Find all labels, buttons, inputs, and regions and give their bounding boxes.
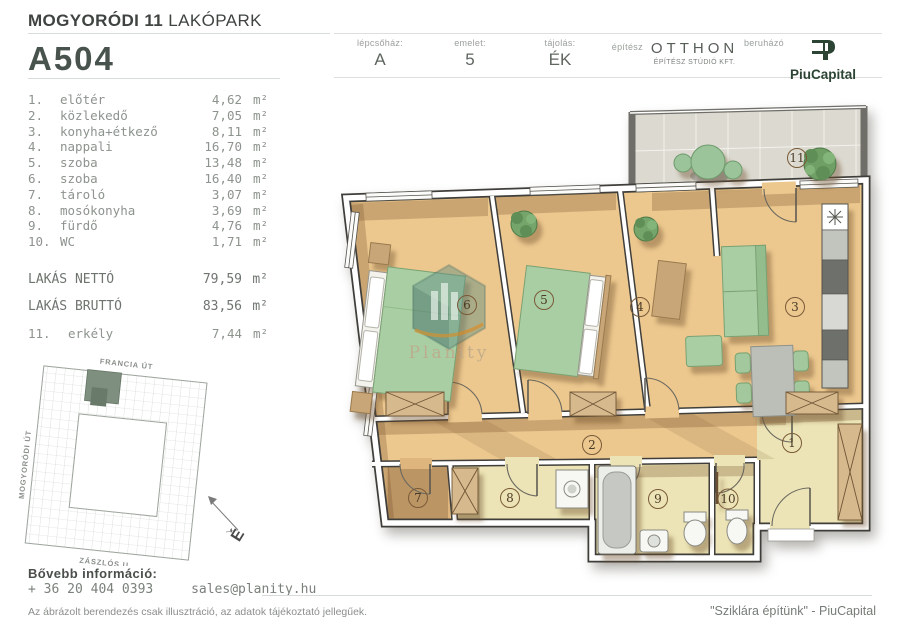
highlighted-unit-core <box>90 387 108 407</box>
washing-machine <box>556 470 588 508</box>
chair <box>736 383 752 404</box>
room-area: 4,76 <box>190 218 242 234</box>
room-name: előtér <box>60 92 190 108</box>
chair <box>793 351 809 372</box>
room-area: 4,62 <box>190 92 242 108</box>
total-net-label: LAKÁS NETTÓ <box>28 266 190 293</box>
total-gross-value: 83,56 <box>190 293 242 320</box>
svg-text:3: 3 <box>791 300 799 314</box>
plant-room4 <box>634 217 658 241</box>
balcony-table <box>691 145 725 179</box>
apartment-id: A504 <box>28 40 115 78</box>
room-name: szoba <box>60 171 190 187</box>
room-row-4: 4.nappali16,70m² <box>28 139 268 155</box>
room-name: mosókonyha <box>60 203 190 219</box>
entry-threshold <box>768 529 814 541</box>
room-num: 6. <box>28 171 60 187</box>
architect-block: építész OTTHON ÉPÍTÉSZ STÚDIÓ KFT. <box>606 34 744 77</box>
field-staircase: lépcsőház: A <box>334 34 426 77</box>
room-unit: m² <box>242 155 268 171</box>
footer-divider <box>262 595 872 596</box>
room-num: 8. <box>28 203 60 219</box>
field-orientation-value: ÉK <box>549 50 572 70</box>
room-num: 5. <box>28 155 60 171</box>
building-outline: FRANCIA ÚT MOGYORÓDI ÚT ZÁSZLÓS U. <box>11 350 209 566</box>
piucapital-building-icon <box>808 38 838 62</box>
svg-text:4: 4 <box>636 300 644 314</box>
room-area: 7,05 <box>190 108 242 124</box>
total-net-value: 79,59 <box>190 266 242 293</box>
site-plan-minimap: FRANCIA ÚT MOGYORÓDI ÚT ZÁSZLÓS U. É <box>10 346 272 566</box>
room-name: tároló <box>60 187 190 203</box>
room-area: 16,70 <box>190 139 242 155</box>
room-num: 7. <box>28 187 60 203</box>
sofa <box>721 245 768 336</box>
room-num: 2. <box>28 108 60 124</box>
architect-subtitle: ÉPÍTÉSZ STÚDIÓ KFT. <box>651 59 738 66</box>
room-row-7: 7.tároló3,07m² <box>28 187 268 203</box>
room-unit: m² <box>242 187 268 203</box>
balcony-name: erkély <box>68 326 190 341</box>
room-num: 1. <box>28 92 60 108</box>
developer-logo: PiuCapital <box>790 38 856 82</box>
room-name: WC <box>60 234 190 250</box>
total-gross-label: LAKÁS BRUTTÓ <box>28 293 190 320</box>
room-name: nappali <box>60 139 190 155</box>
room-unit: m² <box>242 92 268 108</box>
svg-text:5: 5 <box>540 293 548 307</box>
room-row-10: 10.WC1,71m² <box>28 234 268 250</box>
room-unit: m² <box>242 234 268 250</box>
room-row-6: 6.szoba16,40m² <box>28 171 268 187</box>
svg-text:8: 8 <box>506 491 514 505</box>
room-unit: m² <box>242 171 268 187</box>
room-unit: m² <box>242 218 268 234</box>
room-area: 1,71 <box>190 234 242 250</box>
room-row-2: 2.közlekedő7,05m² <box>28 108 268 124</box>
room-unit: m² <box>242 108 268 124</box>
room-unit: m² <box>242 139 268 155</box>
totals-block: LAKÁS NETTÓ79,59m² LAKÁS BRUTTÓ83,56m² <box>28 266 268 320</box>
balcony-chair <box>724 161 742 179</box>
svg-text:7: 7 <box>414 491 422 505</box>
architect-logo: OTTHON ÉPÍTÉSZ STÚDIÓ KFT. <box>651 40 738 66</box>
washbasin <box>640 530 668 552</box>
armchair <box>685 335 722 366</box>
nightstand <box>350 391 372 413</box>
room-row-3: 3.konyha+étkező8,11m² <box>28 124 268 140</box>
room-row-8: 8.mosókonyha3,69m² <box>28 203 268 219</box>
room-name: konyha+étkező <box>60 124 190 140</box>
room-area: 13,48 <box>190 155 242 171</box>
north-compass: É <box>208 496 248 545</box>
room-name: szoba <box>60 155 190 171</box>
bed-room5 <box>514 266 611 380</box>
room-list: 1.előtér4,62m² 2.közlekedő7,05m² 3.konyh… <box>28 92 268 250</box>
room-area: 8,11 <box>190 124 242 140</box>
field-staircase-label: lépcsőház: <box>357 38 403 48</box>
room-area: 3,07 <box>190 187 242 203</box>
developer-block: beruházó PiuCapital <box>744 34 882 77</box>
room-area: 3,69 <box>190 203 242 219</box>
wardrobe <box>452 468 478 514</box>
room-unit: m² <box>242 203 268 219</box>
svg-text:1: 1 <box>788 436 796 450</box>
toilet-wc <box>726 510 748 544</box>
project-title: MOGYORÓDI 11 LAKÓPARK <box>28 11 262 31</box>
compass-arrowhead <box>208 496 217 505</box>
toilet-bathroom <box>684 512 706 546</box>
balcony-unit: m² <box>242 326 268 341</box>
total-gross-row: LAKÁS BRUTTÓ83,56m² <box>28 293 268 320</box>
project-title-bold: MOGYORÓDI 11 <box>28 11 163 30</box>
field-staircase-value: A <box>374 50 385 70</box>
room-num: 9. <box>28 218 60 234</box>
field-floor-label: emelet: <box>454 38 486 48</box>
room-unit: m² <box>242 124 268 140</box>
field-floor-value: 5 <box>465 50 474 70</box>
wardrobe <box>386 392 444 416</box>
street-label-top: FRANCIA ÚT <box>99 357 153 372</box>
total-net-row: LAKÁS NETTÓ79,59m² <box>28 266 268 293</box>
architect-name: OTTHON <box>651 40 738 57</box>
room-num: 3. <box>28 124 60 140</box>
title-divider <box>28 33 330 34</box>
developer-name: PiuCapital <box>790 67 856 82</box>
room-row-1: 1.előtér4,62m² <box>28 92 268 108</box>
bathtub <box>598 466 636 554</box>
field-orientation-label: tájolás: <box>545 38 576 48</box>
floor-plan: Planity 1 2 3 4 5 6 7 8 9 10 11 <box>330 88 900 570</box>
balcony-chair <box>674 154 692 172</box>
room-num: 10. <box>28 234 60 250</box>
header-info-bar: lépcsőház: A emelet: 5 tájolás: ÉK építé… <box>334 33 882 78</box>
room-name: közlekedő <box>60 108 190 124</box>
more-info-label: Bővebb információ: <box>28 566 157 581</box>
nightstand <box>368 243 390 265</box>
room-area: 16,40 <box>190 171 242 187</box>
room-name: fürdő <box>60 218 190 234</box>
field-orientation: tájolás: ÉK <box>514 34 606 77</box>
chair <box>735 353 751 374</box>
svg-text:9: 9 <box>654 492 662 506</box>
phone-number: + 36 20 404 0393 <box>28 582 153 597</box>
total-gross-unit: m² <box>242 293 268 320</box>
svg-text:11: 11 <box>789 151 804 165</box>
wardrobe <box>838 424 862 520</box>
plant-room5 <box>511 211 537 237</box>
wardrobe <box>570 392 616 416</box>
svg-text:2: 2 <box>588 438 596 452</box>
room-row-9: 9.fürdő4,76m² <box>28 218 268 234</box>
room-row-5: 5.szoba13,48m² <box>28 155 268 171</box>
wardrobe <box>786 392 838 414</box>
kitchen-counter <box>822 204 848 388</box>
total-net-unit: m² <box>242 266 268 293</box>
room-number-11: 11 <box>788 149 807 168</box>
company-slogan: "Sziklára építünk" - PiuCapital <box>710 604 876 618</box>
field-floor: emelet: 5 <box>426 34 514 77</box>
disclaimer-text: Az ábrázolt berendezés csak illusztráció… <box>28 606 367 618</box>
watermark-text: Planity <box>409 343 490 363</box>
balcony-row: 11. erkély 7,44 m² <box>28 326 268 341</box>
apartment-id-divider <box>28 78 280 79</box>
room-num: 4. <box>28 139 60 155</box>
balcony-plant <box>804 148 836 180</box>
architect-label: építész <box>612 42 643 52</box>
developer-label: beruházó <box>744 38 784 48</box>
street-label-bottom: ZÁSZLÓS U. <box>79 556 132 566</box>
compass-letter: É <box>226 525 248 544</box>
balcony-num: 11. <box>28 326 68 341</box>
svg-text:10: 10 <box>720 492 735 506</box>
svg-text:6: 6 <box>463 298 471 312</box>
project-title-light: LAKÓPARK <box>168 11 262 30</box>
balcony-area: 7,44 <box>190 326 242 341</box>
hob-icon <box>827 209 843 225</box>
